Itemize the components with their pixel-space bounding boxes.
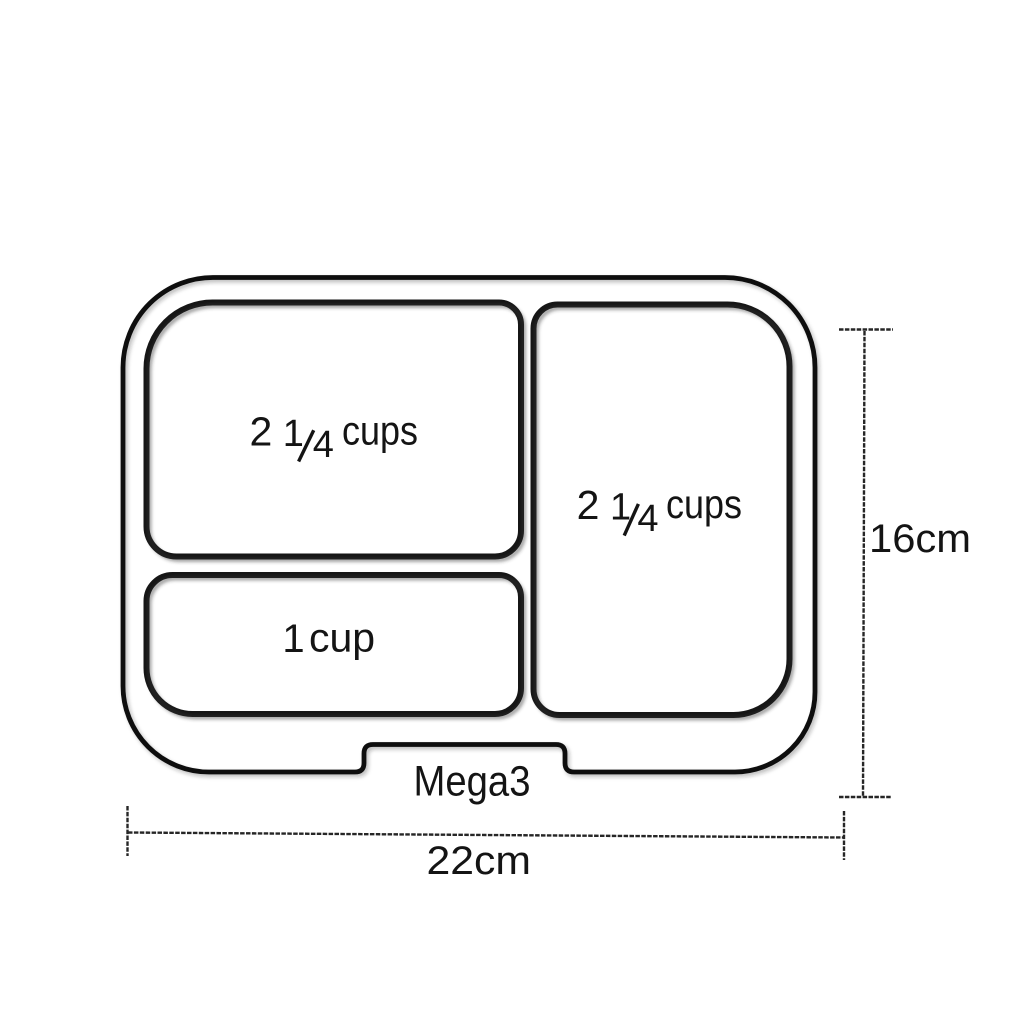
svg-text:cups: cups — [342, 408, 418, 454]
svg-text:16cm: 16cm — [869, 517, 971, 561]
svg-text:2: 2 — [250, 409, 273, 455]
svg-text:22cm: 22cm — [427, 839, 532, 883]
svg-text:1: 1 — [610, 487, 631, 529]
svg-text:2: 2 — [577, 482, 600, 528]
svg-text:1: 1 — [282, 617, 304, 661]
svg-text:4: 4 — [313, 424, 334, 466]
svg-text:cups: cups — [666, 481, 742, 527]
svg-text:cup: cup — [309, 615, 375, 661]
svg-text:4: 4 — [637, 498, 658, 540]
svg-text:1: 1 — [283, 413, 304, 455]
svg-text:Mega3: Mega3 — [414, 758, 531, 806]
